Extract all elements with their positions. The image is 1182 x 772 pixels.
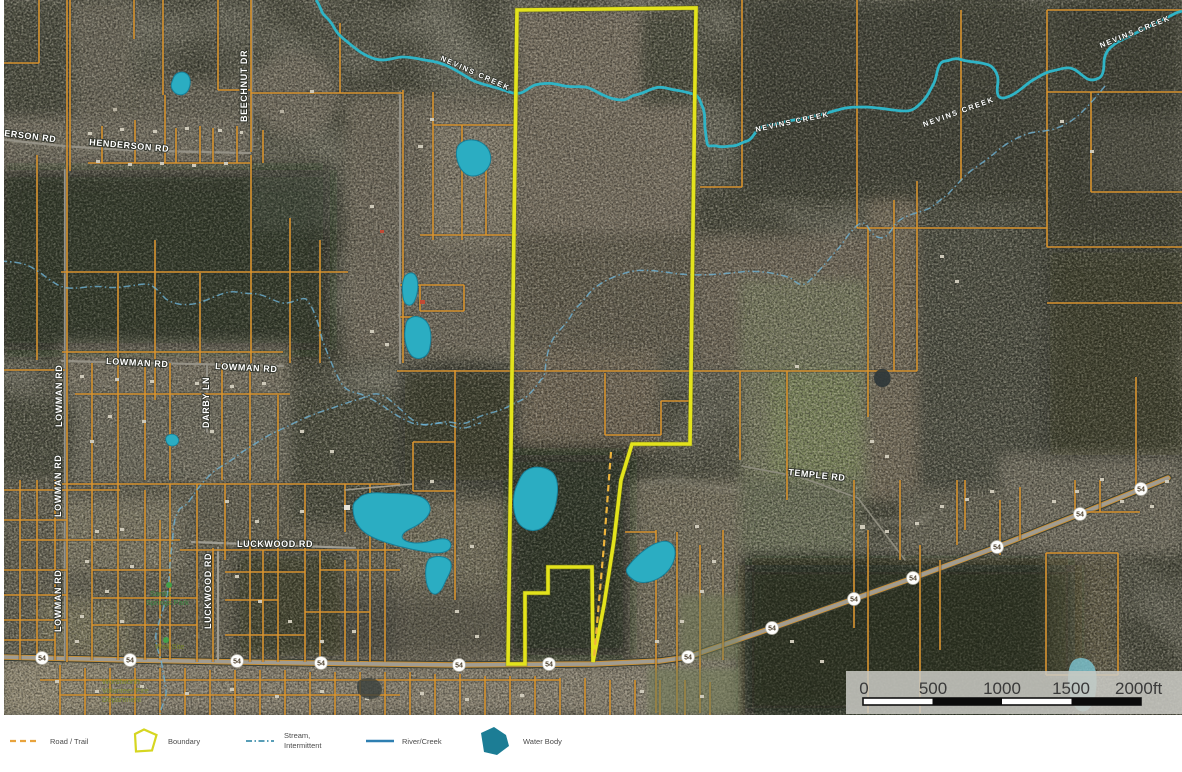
svg-text:54: 54 xyxy=(317,661,325,668)
svg-text:Road / Trail: Road / Trail xyxy=(50,737,89,746)
svg-text:Sardis: Sardis xyxy=(150,589,172,598)
svg-text:LOWMAN RD: LOWMAN RD xyxy=(54,365,64,427)
svg-text:1000: 1000 xyxy=(983,679,1021,698)
svg-text:River/Creek: River/Creek xyxy=(402,737,442,746)
svg-text:LUCKWOOD RD: LUCKWOOD RD xyxy=(237,539,313,549)
svg-text:54: 54 xyxy=(1076,512,1084,519)
svg-text:54: 54 xyxy=(909,576,917,583)
svg-text:54: 54 xyxy=(850,597,858,604)
svg-text:54: 54 xyxy=(126,658,134,665)
svg-text:54: 54 xyxy=(545,662,553,669)
svg-text:500: 500 xyxy=(919,679,947,698)
svg-text:Well Site: Well Site xyxy=(155,642,184,651)
svg-text:Stream,: Stream, xyxy=(284,731,310,740)
svg-text:1500: 1500 xyxy=(1052,679,1090,698)
svg-text:2000ft: 2000ft xyxy=(1115,679,1163,698)
svg-text:LUCKWOOD RD: LUCKWOOD RD xyxy=(203,553,213,629)
svg-text:54: 54 xyxy=(684,655,692,662)
svg-text:DARBY LN: DARBY LN xyxy=(201,377,211,428)
svg-text:BEECHNUT DR: BEECHNUT DR xyxy=(239,50,249,122)
svg-text:LOWMAN RD: LOWMAN RD xyxy=(53,455,63,517)
svg-text:0: 0 xyxy=(859,679,868,698)
svg-text:54: 54 xyxy=(233,659,241,666)
svg-text:Boundary: Boundary xyxy=(168,737,200,746)
svg-text:Intermittent: Intermittent xyxy=(284,741,322,750)
svg-text:Springs Park: Springs Park xyxy=(146,598,189,607)
svg-text:54: 54 xyxy=(993,545,1001,552)
svg-text:54: 54 xyxy=(38,656,46,663)
svg-text:54: 54 xyxy=(1137,487,1145,494)
svg-text:Water Body: Water Body xyxy=(523,737,562,746)
svg-text:LOWMAN RD: LOWMAN RD xyxy=(53,570,63,632)
svg-text:54: 54 xyxy=(768,626,776,633)
svg-text:54: 54 xyxy=(455,663,463,670)
